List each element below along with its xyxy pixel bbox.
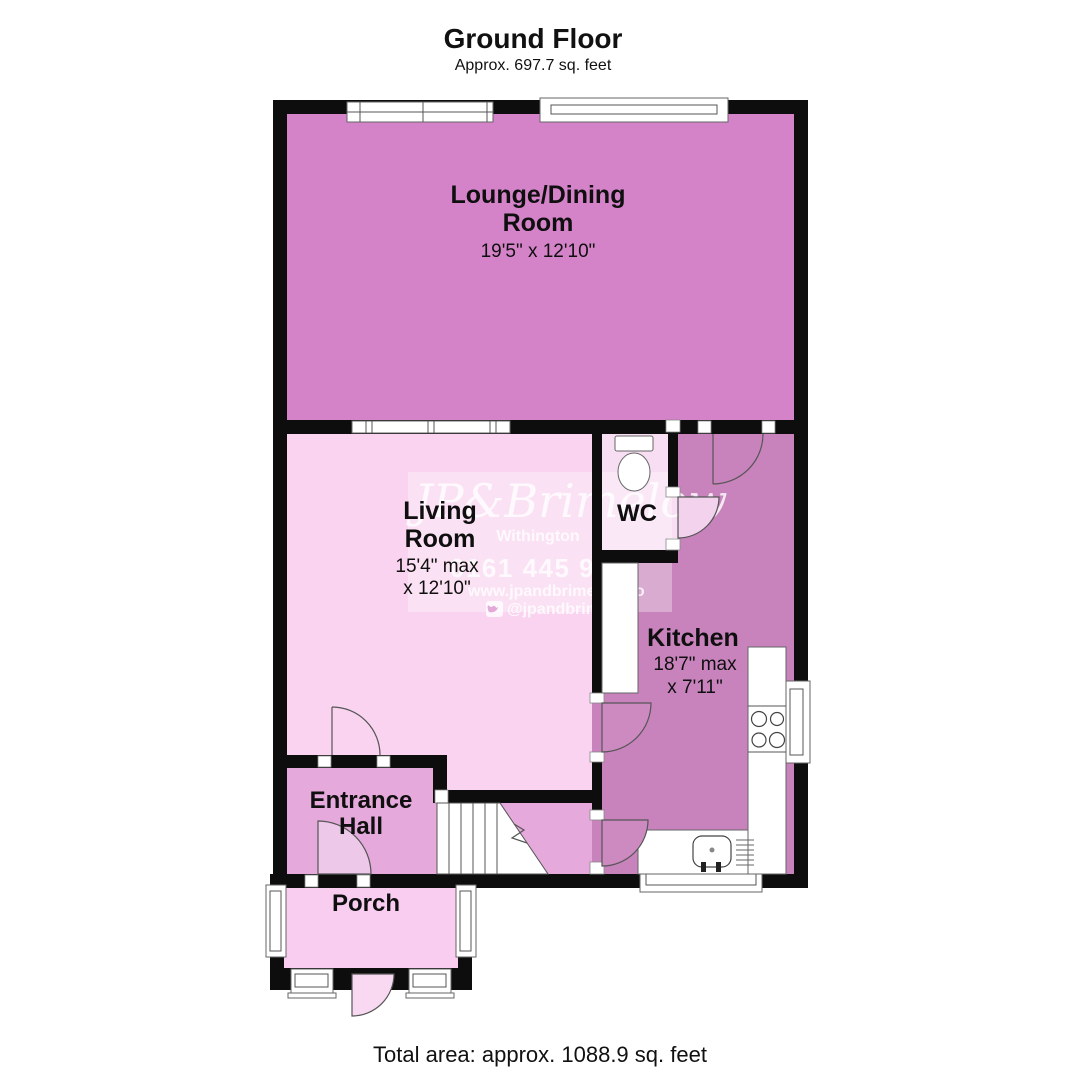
jamb	[590, 810, 604, 820]
window-lounge-top-right	[540, 98, 728, 122]
kitchen-dims-line1: 18'7" max	[653, 654, 737, 675]
jamb	[666, 487, 680, 497]
living-label-line2: Room	[405, 525, 476, 553]
wc-label: WC	[617, 500, 657, 527]
doorway-living-kitchen	[592, 703, 602, 752]
kitchen-counter-left	[602, 563, 638, 693]
room-lounge-fill	[287, 114, 794, 420]
lounge-label-line2: Room	[503, 209, 574, 237]
wall-segment	[287, 755, 447, 768]
wall-segment	[592, 434, 602, 693]
hall-label-line1: Entrance	[310, 787, 413, 814]
jamb	[377, 756, 390, 767]
wall-segment	[668, 427, 678, 487]
jamb	[435, 790, 448, 803]
glazed-divider-lounge-living	[352, 421, 510, 433]
window-porch-front-left	[288, 969, 336, 998]
jamb	[305, 875, 318, 887]
window-porch-front-right	[406, 969, 454, 998]
jamb	[762, 421, 775, 433]
door-porch-front	[352, 974, 394, 1016]
kitchen-label: Kitchen	[647, 624, 739, 652]
window-porch-left	[266, 885, 286, 957]
twitter-icon	[486, 601, 503, 617]
window-lounge-top-left	[347, 102, 493, 122]
window-kitchen-right	[784, 681, 810, 763]
jamb	[590, 752, 604, 762]
wall-segment	[592, 550, 678, 563]
floorplan-page: Ground Floor Approx. 697.7 sq. feet JP&B…	[0, 0, 1080, 1080]
living-label-line1: Living	[403, 497, 477, 525]
kitchen-dims-line2: x 7'11"	[667, 677, 722, 698]
jamb	[357, 875, 370, 887]
jamb	[666, 539, 680, 550]
toilet-icon	[615, 436, 653, 491]
jamb	[590, 693, 604, 703]
wall-segment	[437, 790, 602, 803]
lounge-label-line1: Lounge/Dining	[451, 181, 626, 209]
jamb	[666, 420, 680, 432]
porch-label: Porch	[332, 890, 400, 917]
living-dims-line1: 15'4" max	[395, 556, 479, 577]
living-dims-line2: x 12'10"	[403, 578, 470, 599]
floor-plan-canvas: Ground Floor Approx. 697.7 sq. feet JP&B…	[0, 0, 1080, 1080]
page-title: Ground Floor	[444, 23, 623, 54]
window-porch-right	[456, 885, 476, 957]
wall-segment	[273, 100, 287, 888]
watermark-location: Withington	[496, 528, 579, 545]
lounge-dims: 19'5" x 12'10"	[481, 241, 596, 262]
wall-segment	[794, 100, 808, 888]
page-subtitle: Approx. 697.7 sq. feet	[455, 57, 612, 74]
jamb	[698, 421, 711, 433]
jamb	[318, 756, 331, 767]
hall-label-line2: Hall	[339, 813, 383, 840]
doorway-hall-kitchen	[592, 820, 602, 862]
total-area-text: Total area: approx. 1088.9 sq. feet	[373, 1042, 707, 1067]
